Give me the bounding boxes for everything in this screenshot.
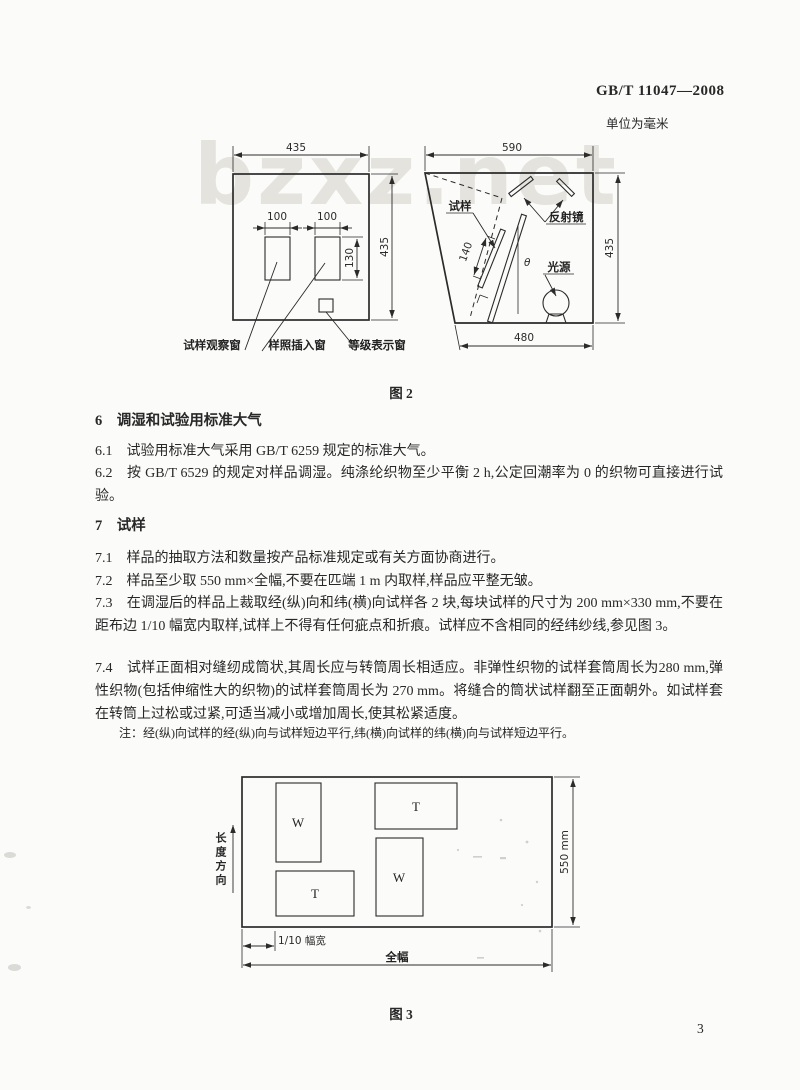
length-direction-label: 长度方向 bbox=[212, 832, 228, 888]
scan-smudge bbox=[8, 964, 21, 971]
cabinet-side-diagram: 590 435 480 140 θ bbox=[425, 142, 625, 350]
side-height-dim: 435 bbox=[604, 238, 616, 258]
side-top-dim: 590 bbox=[502, 142, 522, 154]
observe-window-1 bbox=[265, 237, 290, 280]
angle-symbol: θ bbox=[524, 257, 531, 269]
clause-7-3: 7.3 在调湿后的样品上裁取经(纵)向和纬(横)向试样各 2 块,每块试样的尺寸… bbox=[95, 592, 723, 638]
specimen-block-w2-label: W bbox=[393, 870, 406, 885]
mirror-right bbox=[557, 179, 575, 197]
scan-artifacts bbox=[457, 819, 541, 959]
label-grade-window: 等级表示窗 bbox=[347, 338, 406, 352]
unit-note: 单位为毫米 bbox=[606, 113, 669, 132]
mirror-left bbox=[509, 176, 533, 196]
window1-width-dim: 100 bbox=[267, 211, 287, 223]
front-width-dim: 435 bbox=[286, 142, 306, 154]
figure2-caption: 图 2 bbox=[366, 382, 436, 402]
section6-heading: 6 调湿和试验用标准大气 bbox=[95, 410, 723, 433]
fabric-sample-outline bbox=[242, 777, 552, 927]
window2-width-dim: 100 bbox=[317, 211, 337, 223]
clause-6-2: 6.2 按 GB/T 6529 的规定对样品调湿。纯涤纶织物至少平衡 2 h,公… bbox=[95, 462, 723, 508]
observe-window-2 bbox=[315, 237, 340, 280]
clause-6-1: 6.1 试验用标准大气采用 GB/T 6259 规定的标准大气。 bbox=[95, 440, 723, 463]
specimen-block-t2-label: T bbox=[311, 886, 319, 901]
scanned-standard-page: bzxz.net GB/T 11047—2008 单位为毫米 435 435 bbox=[0, 0, 800, 1090]
lamp-base bbox=[546, 314, 566, 323]
label-specimen: 试样 bbox=[449, 199, 472, 213]
full-width-dim-label: 全幅 bbox=[385, 950, 409, 964]
section7-heading: 7 试样 bbox=[95, 515, 723, 538]
specimen-length-dim: 140 bbox=[457, 241, 475, 264]
clause-7-1: 7.1 样品的抽取方法和数量按产品标准规定或有关方面协商进行。 bbox=[95, 547, 723, 570]
clause-7-note: 注：经(纵)向试样的经(纵)向与试样短边平行,纬(横)向试样的纬(横)向与试样短… bbox=[119, 723, 719, 743]
clause-7-2: 7.2 样品至少取 550 mm×全幅,不要在匹端 1 m 内取样,样品应平整无… bbox=[95, 570, 723, 593]
cabinet-front-diagram: 435 435 100 100 130 bbox=[183, 142, 406, 352]
figure3-drawing: W T W T 550 mm 1/10 幅宽 全幅 bbox=[195, 772, 595, 977]
grade-window bbox=[319, 299, 333, 312]
cabinet-side-outline bbox=[425, 173, 593, 323]
standard-code: GB/T 11047—2008 bbox=[596, 83, 725, 100]
lamp-bulb bbox=[543, 290, 569, 316]
side-bottom-dim: 480 bbox=[514, 332, 534, 344]
label-mirror: 反射镜 bbox=[549, 210, 584, 224]
page-number: 3 bbox=[697, 1021, 704, 1037]
window-height-dim: 130 bbox=[344, 248, 356, 268]
page-content: GB/T 11047—2008 单位为毫米 435 435 bbox=[0, 0, 800, 1090]
label-light-source: 光源 bbox=[547, 260, 571, 274]
specimen-block-t1-label: T bbox=[412, 799, 420, 814]
specimen-block-w1-label: W bbox=[292, 815, 305, 830]
label-observe-window: 试样观察窗 bbox=[183, 338, 241, 352]
clause-7-4: 7.4 试样正面相对缝纫成筒状,其周长应与转筒周长相适应。非弹性织物的试样套筒周… bbox=[95, 657, 723, 726]
scan-smudge bbox=[4, 852, 16, 858]
cabinet-front-outline bbox=[233, 174, 369, 320]
selvedge-dim-label: 1/10 幅宽 bbox=[278, 934, 326, 947]
front-height-dim: 435 bbox=[379, 237, 391, 257]
fabric-length-dim: 550 mm bbox=[559, 830, 571, 874]
scan-smudge bbox=[26, 906, 31, 909]
label-insert-window: 样照插入窗 bbox=[268, 338, 326, 352]
specimen-board bbox=[488, 214, 527, 323]
figure2-drawing: 435 435 100 100 130 bbox=[165, 140, 645, 375]
figure3-caption: 图 3 bbox=[366, 1003, 436, 1023]
